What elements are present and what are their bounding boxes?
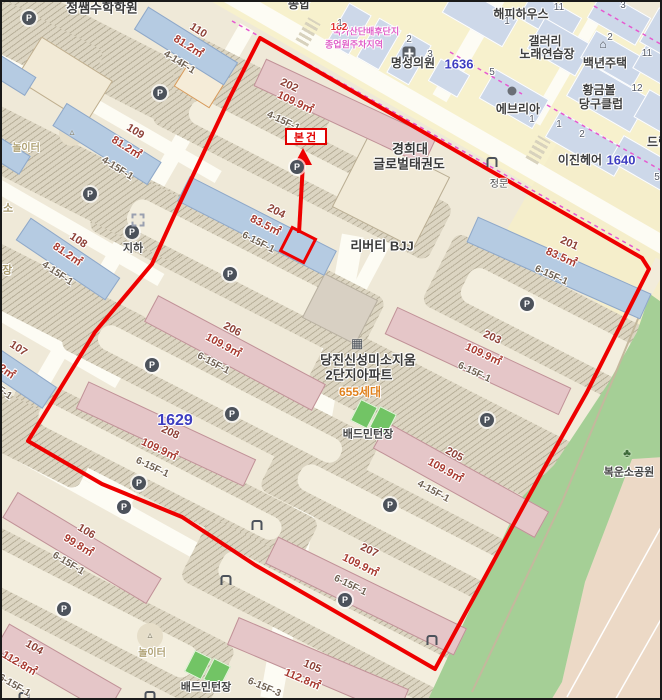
parking-icon: P — [290, 160, 304, 174]
parking-icon: P — [145, 358, 159, 372]
map-label: 당구클럽 — [579, 98, 623, 110]
map-label: 1636 — [445, 58, 474, 71]
map-label: 5 — [489, 68, 495, 78]
map-label: 1 — [556, 120, 562, 130]
map-label: 1 — [337, 19, 343, 29]
map-label: 배드민턴장 — [181, 683, 232, 694]
map-label: 2 — [579, 130, 585, 140]
map-label: 백년주택 — [583, 57, 627, 69]
map-label: 배드민턴장 — [343, 430, 394, 441]
apartment-icon: ▦ — [351, 337, 363, 350]
map-label: 지하 — [123, 244, 143, 255]
parking-icon: P — [223, 267, 237, 281]
map-label: 해피하우스 — [493, 8, 548, 20]
map-label: 종업원주차지역 — [325, 41, 383, 50]
map-label: 장 — [2, 266, 12, 277]
subject-property-label: 본건 — [285, 128, 327, 145]
map-label: 11 — [554, 3, 564, 13]
underground-ramp-icon — [132, 214, 145, 227]
map-label: 드림 — [647, 136, 662, 148]
map-label: 5 — [654, 173, 660, 183]
playground-icon: ▵ — [147, 631, 152, 641]
parking-icon: P — [153, 86, 167, 100]
parcel-line — [614, 614, 662, 700]
parking-icon: P — [383, 498, 397, 512]
map-label: 리버티 BJJ — [350, 240, 413, 253]
parking-icon: P — [83, 187, 97, 201]
map-label: 황금볼 — [582, 84, 615, 96]
map-label: 정문 — [490, 180, 508, 190]
bus-stop-icon — [427, 635, 438, 645]
map-label: 경희대 — [392, 143, 428, 156]
map-label: 종합 — [288, 0, 310, 10]
parking-icon: P — [125, 225, 139, 239]
map-label: 655세대 — [339, 386, 381, 398]
parking-icon: P — [22, 11, 36, 25]
parking-icon: P — [57, 602, 71, 616]
map-label: 이진헤어 — [558, 154, 602, 166]
map-label: 1 — [529, 115, 535, 125]
map-canvas[interactable]: 본건 11081.2㎡4-14F-110981.2㎡4-15F-110881.2… — [0, 0, 662, 700]
map-label: 정쌤수학학원 — [66, 2, 138, 15]
tree-icon: ♣ — [623, 447, 631, 459]
map-label: 2 — [607, 33, 613, 43]
playground-icon: ▵ — [69, 128, 74, 138]
map-label: 1629 — [157, 413, 193, 429]
house-icon: ⌂ — [599, 38, 606, 50]
map-label: 놀이터 — [12, 144, 40, 154]
parking-icon: P — [117, 500, 131, 514]
map-label: 11 — [642, 49, 652, 59]
map-label: 3 — [427, 50, 433, 60]
map-label: 복운소공원 — [604, 468, 655, 479]
map-label: 놀이터 — [138, 649, 166, 659]
map-label: 1 — [504, 17, 510, 27]
map-label: 글로벌태권도 — [373, 158, 445, 171]
map-label: 1640 — [607, 154, 636, 167]
map-label: 2단지아파트 — [325, 369, 392, 382]
bus-stop-icon — [145, 691, 156, 700]
map-label: 노래연습장 — [519, 48, 574, 60]
parking-icon: P — [225, 407, 239, 421]
parking-icon: P — [132, 476, 146, 490]
bus-stop-icon — [487, 157, 498, 167]
map-label: 당진신성미소지움 — [320, 354, 416, 367]
parking-icon: P — [338, 593, 352, 607]
parking-icon: P — [520, 297, 534, 311]
building-floors: 6-15F-1 — [0, 673, 32, 699]
map-label: 소 — [3, 204, 13, 215]
shop-icon — [508, 87, 517, 96]
parking-icon: P — [480, 413, 494, 427]
parcel-line — [567, 522, 662, 697]
map-label: 갤러리 — [528, 35, 561, 47]
map-label: 12 — [631, 84, 642, 94]
map-label: 2 — [406, 35, 412, 45]
map-label: 3 — [620, 1, 626, 11]
bus-stop-icon — [252, 520, 263, 530]
bus-stop-icon — [221, 575, 232, 585]
